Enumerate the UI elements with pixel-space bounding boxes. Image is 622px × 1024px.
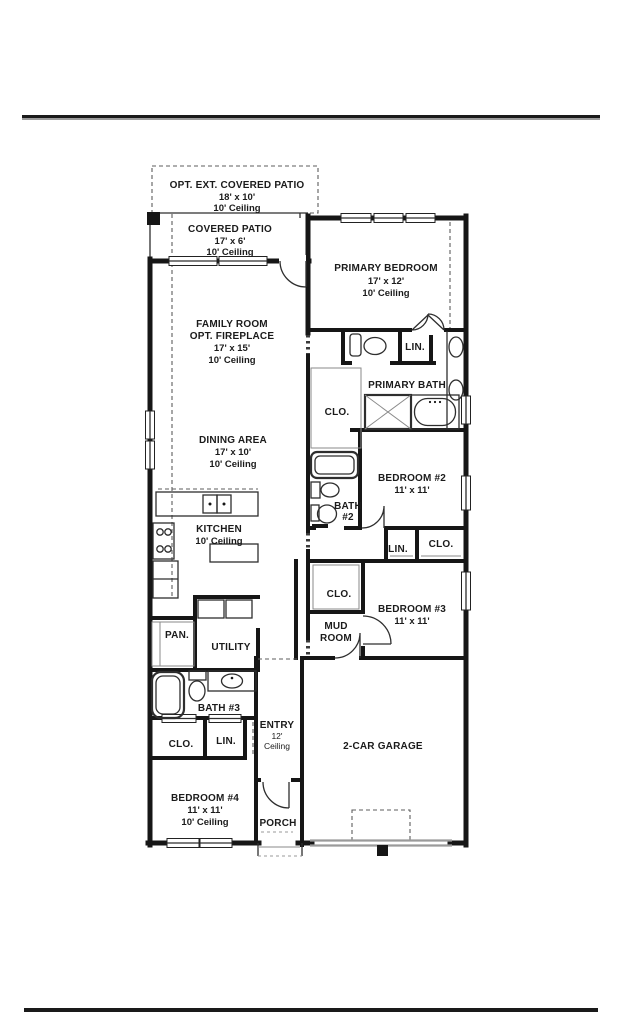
room-ceiling-primary-bedroom: 10' Ceiling [362,288,409,299]
garage-door [310,841,452,846]
room-label-kitchen: KITCHEN [196,524,242,535]
room-label-bedroom-4: BEDROOM #4 [171,793,239,804]
shower [365,395,411,429]
room-label-bath-2-line2: #2 [342,512,354,523]
room-label-closet-bedroom3: CLO. [327,589,352,600]
room-dims-bedroom-3: 11' x 11' [394,616,429,627]
primary-sink-1 [449,337,463,357]
range [153,523,174,559]
room-label-opt-ext-covered-patio: OPT. EXT. COVERED PATIO [170,180,305,191]
room-dims-entry: 12' [271,731,282,741]
primary-toilet [364,338,386,355]
room-label-closet-bedroom4: CLO. [169,739,194,750]
cased-openings [253,335,308,754]
room-label-garage: 2-CAR GARAGE [343,741,423,752]
garage-door-post [377,845,388,856]
floor-plan: OPT. EXT. COVERED PATIO 18' x 10' 10' Ce… [0,0,622,1024]
porch-slab [258,832,302,856]
room-dims-primary-bedroom: 17' x 12' [368,276,404,287]
primary-wc-sink [350,334,361,356]
room-label-covered-patio: COVERED PATIO [188,224,272,235]
garage-details [310,810,452,856]
room-ceiling-bedroom-4: 10' Ceiling [181,817,228,828]
pantry-shelf [152,622,194,666]
room-dims-family-room: 17' x 15' [214,343,250,354]
room-dims-opt-ext-covered-patio: 18' x 10' [219,192,255,203]
room-ceiling-kitchen: 10' Ceiling [195,536,242,547]
room-ceiling-dining-area: 10' Ceiling [209,459,256,470]
room-label-entry: ENTRY [260,720,295,731]
room-dims-covered-patio: 17' x 6' [215,236,246,247]
room-dims-dining-area: 17' x 10' [215,447,251,458]
room-label-utility: UTILITY [211,642,250,653]
room-label-dining-area: DINING AREA [199,435,267,446]
room-label-primary-bedroom: PRIMARY BEDROOM [334,263,438,274]
patio-post [147,212,160,225]
room-label-bath-2: BATH [334,501,362,512]
garage-storage-dashed [352,810,410,841]
room-label-linen-hall: LIN. [388,544,408,555]
room-label-family-room: FAMILY ROOM [196,319,268,330]
dryer [226,600,252,618]
room-label-mud-room: MUD [324,621,347,632]
room-label-closet-hall: CLO. [429,539,454,550]
primary-sink-2 [449,380,463,400]
room-label-linen-bedroom4: LIN. [216,736,236,747]
room-label-bath-3: BATH #3 [198,703,241,714]
room-label-linen-primary: LIN. [405,342,425,353]
bed3-closet-shelf [313,565,359,609]
floor-plan-page: { "colors": { "wall": "#161616", "garage… [0,0,622,1024]
room-label-closet-primary: CLO. [325,407,350,418]
room-label-mud-room-line2: ROOM [320,633,352,644]
primary-tub [411,395,459,429]
room-label-pantry: PAN. [165,630,189,641]
room-label-bedroom-2: BEDROOM #2 [378,473,446,484]
room-label-porch: PORCH [259,818,296,829]
room-ceiling-entry: Ceiling [264,741,290,751]
room-ceiling-family-room: 10' Ceiling [208,355,255,366]
room-dims-bedroom-2: 11' x 11' [394,485,429,496]
room-ceiling-opt-ext-covered-patio: 10' Ceiling [213,203,260,214]
washer [198,600,224,618]
room-dims-bedroom-4: 11' x 11' [187,805,222,816]
room-option-family-room: OPT. FIREPLACE [190,331,275,342]
room-label-bedroom-3: BEDROOM #3 [378,604,446,615]
room-label-primary-bath: PRIMARY BATH [368,380,446,391]
room-ceiling-covered-patio: 10' Ceiling [206,247,253,258]
interior-walls [150,330,466,845]
